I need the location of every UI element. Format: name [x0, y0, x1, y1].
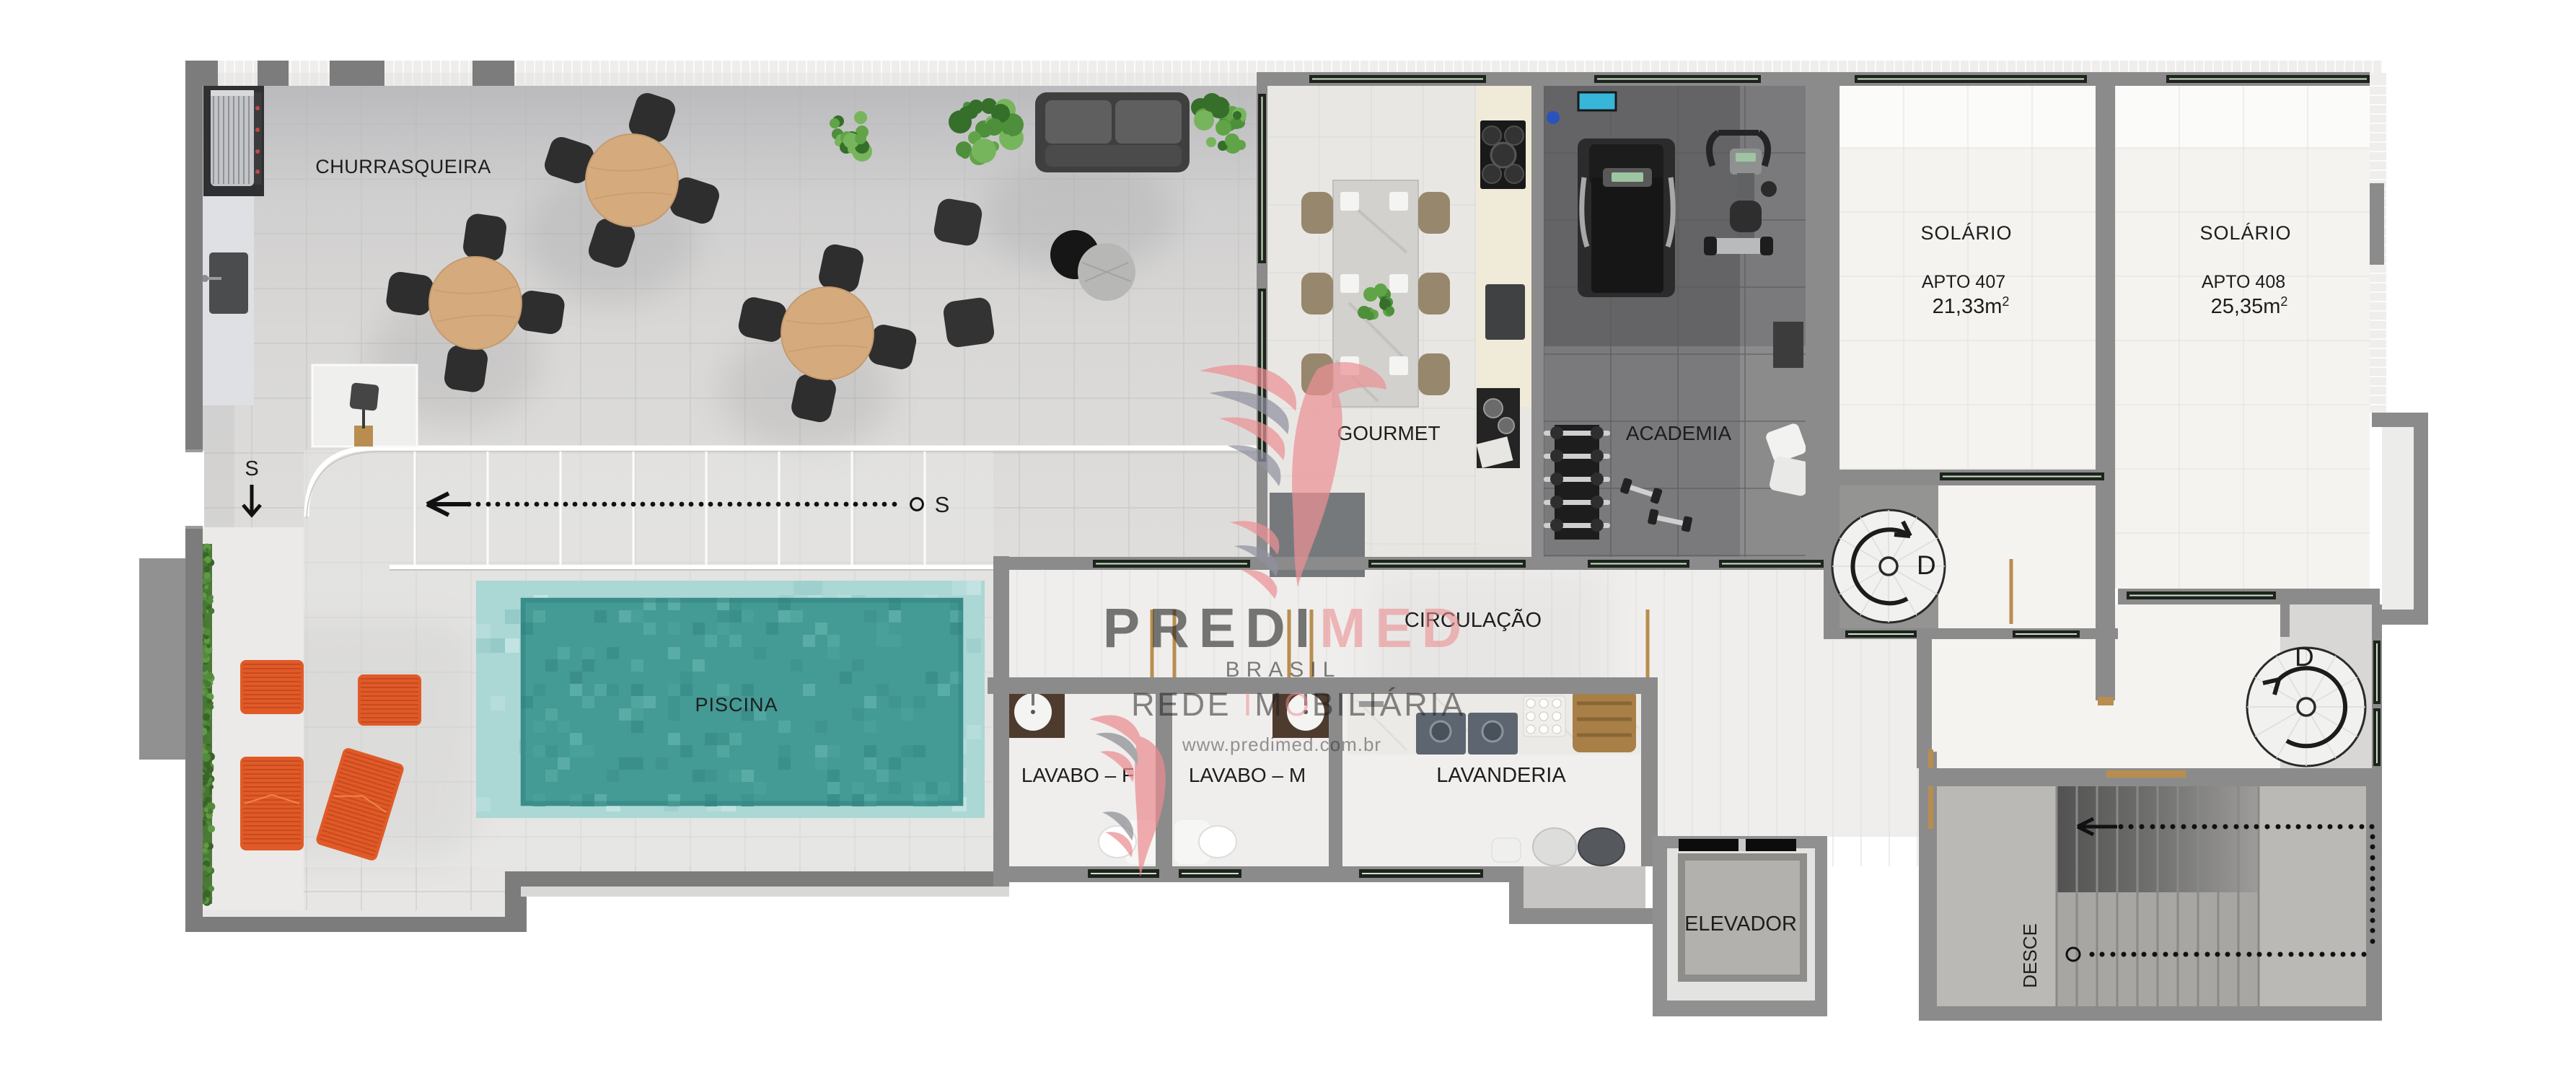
svg-text:REDE IMOBILIÁRIA: REDE IMOBILIÁRIA	[1131, 686, 1466, 723]
svg-text:LAVANDERIA: LAVANDERIA	[1436, 764, 1566, 787]
svg-text:PISCINA: PISCINA	[695, 694, 778, 716]
svg-text:S: S	[935, 492, 950, 517]
svg-text:DESCE: DESCE	[2019, 923, 2041, 988]
svg-text:LAVABO – M: LAVABO – M	[1189, 764, 1306, 786]
svg-text:GOURMET: GOURMET	[1337, 422, 1440, 444]
svg-text:D: D	[2295, 642, 2314, 672]
svg-text:BRASIL: BRASIL	[1226, 658, 1342, 682]
svg-text:CHURRASQUEIRA: CHURRASQUEIRA	[315, 156, 491, 177]
svg-text:SOLÁRIO: SOLÁRIO	[1920, 222, 2012, 244]
svg-text:APTO 407: APTO 407	[1922, 272, 2005, 292]
svg-text:PREDIMED: PREDIMED	[1103, 597, 1471, 659]
svg-text:SOLÁRIO: SOLÁRIO	[2199, 222, 2291, 244]
svg-text:www.predimed.com.br: www.predimed.com.br	[1182, 734, 1381, 755]
svg-text:APTO 408: APTO 408	[2202, 272, 2285, 292]
svg-text:D: D	[1917, 550, 1936, 580]
svg-text:S: S	[245, 457, 258, 480]
svg-text:21,33m2: 21,33m2	[1933, 294, 2010, 318]
svg-text:ACADEMIA: ACADEMIA	[1626, 422, 1732, 444]
svg-text:LAVABO – F: LAVABO – F	[1021, 764, 1134, 786]
svg-text:25,35m2: 25,35m2	[2211, 294, 2288, 318]
svg-text:ELEVADOR: ELEVADOR	[1684, 912, 1797, 936]
